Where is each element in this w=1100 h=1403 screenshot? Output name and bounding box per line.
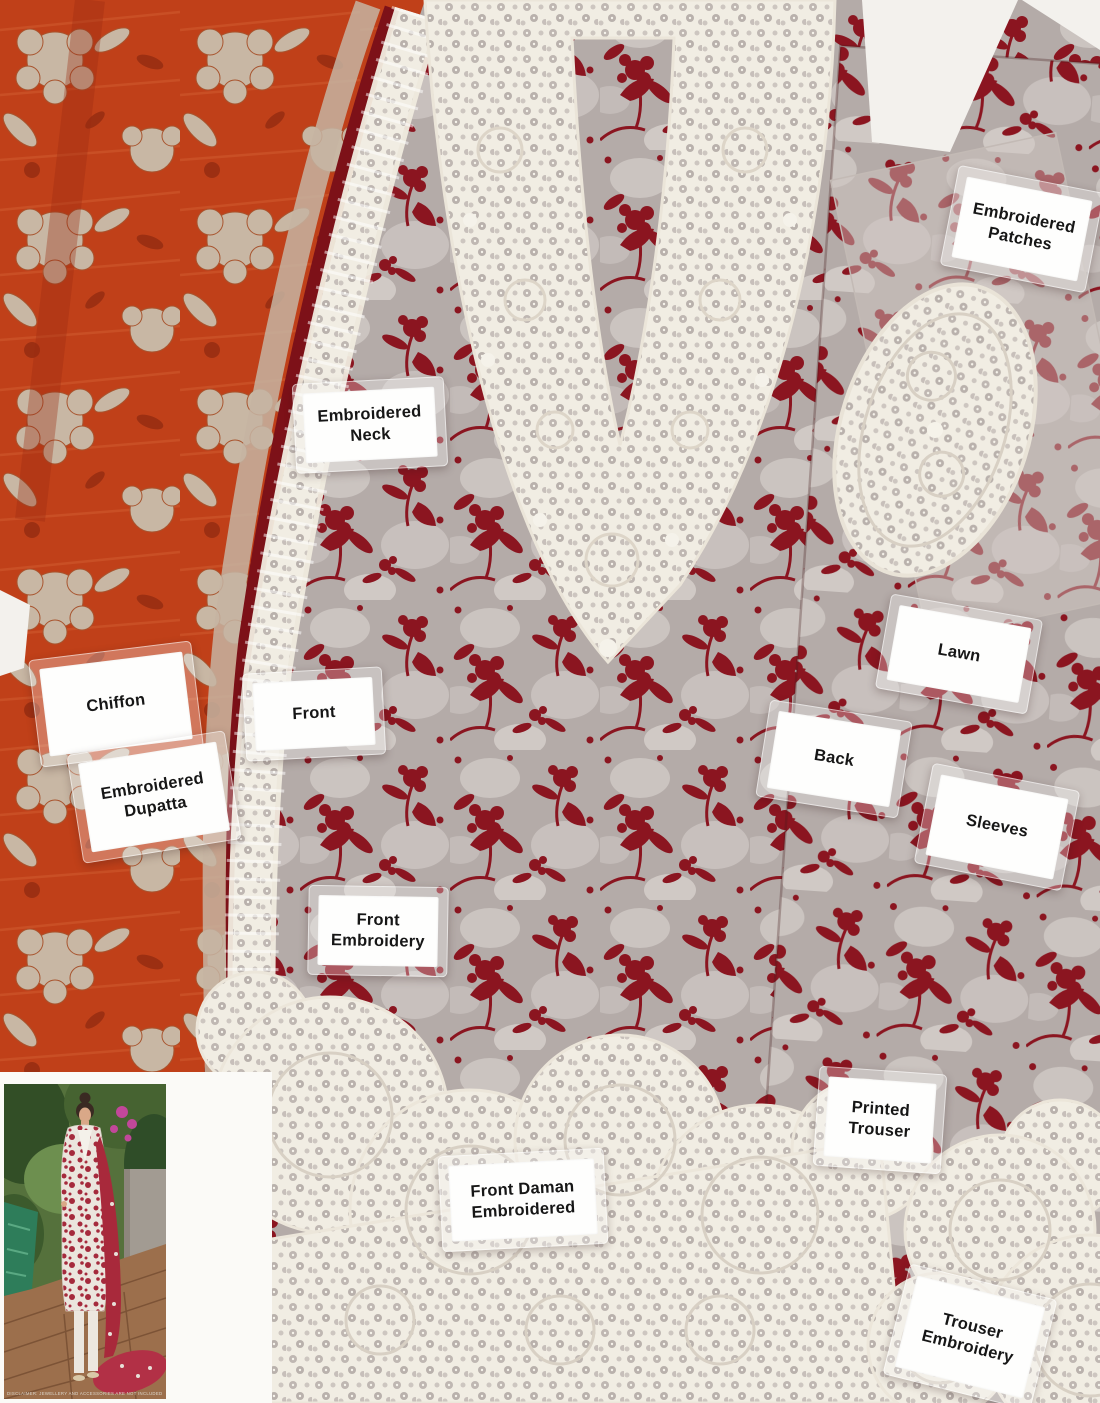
label-front-daman-embroidered-text: Front Daman Embroidered — [448, 1158, 598, 1242]
label-sleeves-text: Sleeves — [925, 774, 1068, 879]
label-embroidered-dupatta-text: Embroidered Dupatta — [78, 742, 230, 853]
label-printed-trouser: Printed Trouser — [813, 1066, 948, 1175]
label-front: Front — [242, 666, 386, 761]
label-front-daman-embroidered: Front Daman Embroidered — [438, 1148, 609, 1253]
label-lawn-text: Lawn — [886, 605, 1031, 703]
label-front-text: Front — [252, 677, 375, 751]
label-embroidered-neck-text: Embroidered Neck — [302, 387, 437, 464]
label-embroidered-neck: Embroidered Neck — [292, 376, 449, 474]
label-embroidered-patches-text: Embroidered Patches — [951, 177, 1092, 282]
label-printed-trouser-text: Printed Trouser — [823, 1076, 936, 1163]
label-front-embroidery: Front Embroidery — [307, 885, 449, 977]
label-front-embroidery-text: Front Embroidery — [317, 895, 438, 967]
label-back-text: Back — [767, 711, 902, 807]
inset-caption: DISCLAIMER: JEWELLERY AND ACCESSORIES AR… — [7, 1391, 162, 1396]
inset-model-photo: DISCLAIMER: JEWELLERY AND ACCESSORIES AR… — [0, 1059, 184, 1402]
label-trouser-embroidery-text: Trouser Embroidery — [895, 1275, 1046, 1398]
fabric-suit-photo: DISCLAIMER: JEWELLERY AND ACCESSORIES AR… — [0, 0, 1100, 1403]
